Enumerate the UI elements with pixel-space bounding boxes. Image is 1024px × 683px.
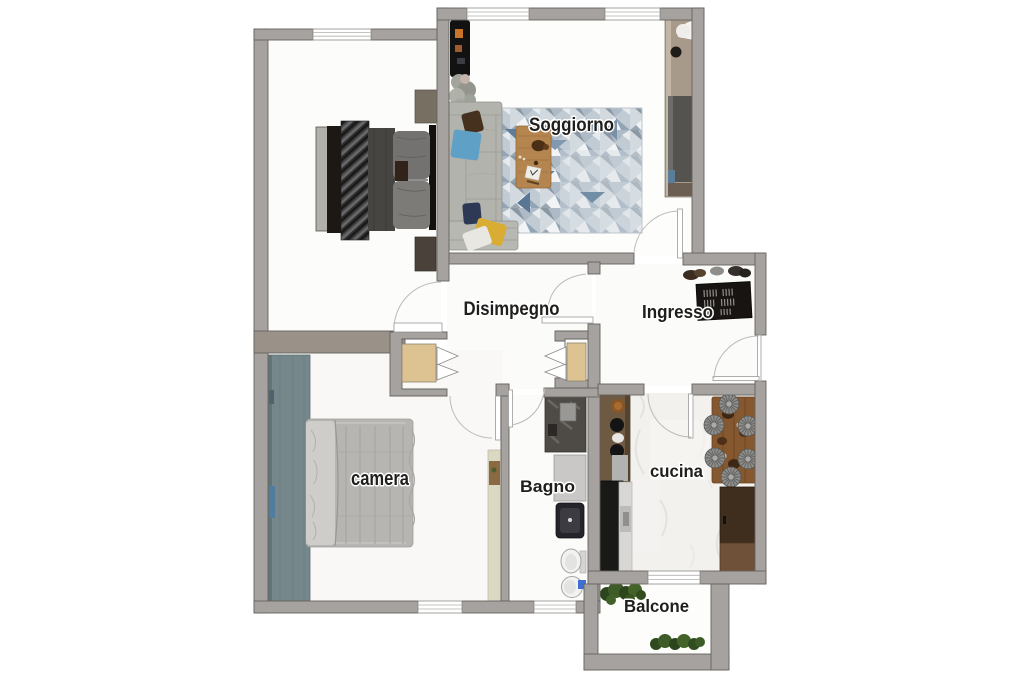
svg-text:camera: camera <box>351 468 410 490</box>
svg-text:Disimpegno: Disimpegno <box>464 299 560 320</box>
svg-text:Ingresso: Ingresso <box>642 301 713 322</box>
svg-text:Balcone: Balcone <box>624 596 689 616</box>
svg-text:Bagno: Bagno <box>520 477 575 496</box>
svg-text:Soggiorno: Soggiorno <box>529 115 614 136</box>
svg-text:cucina: cucina <box>650 461 703 481</box>
